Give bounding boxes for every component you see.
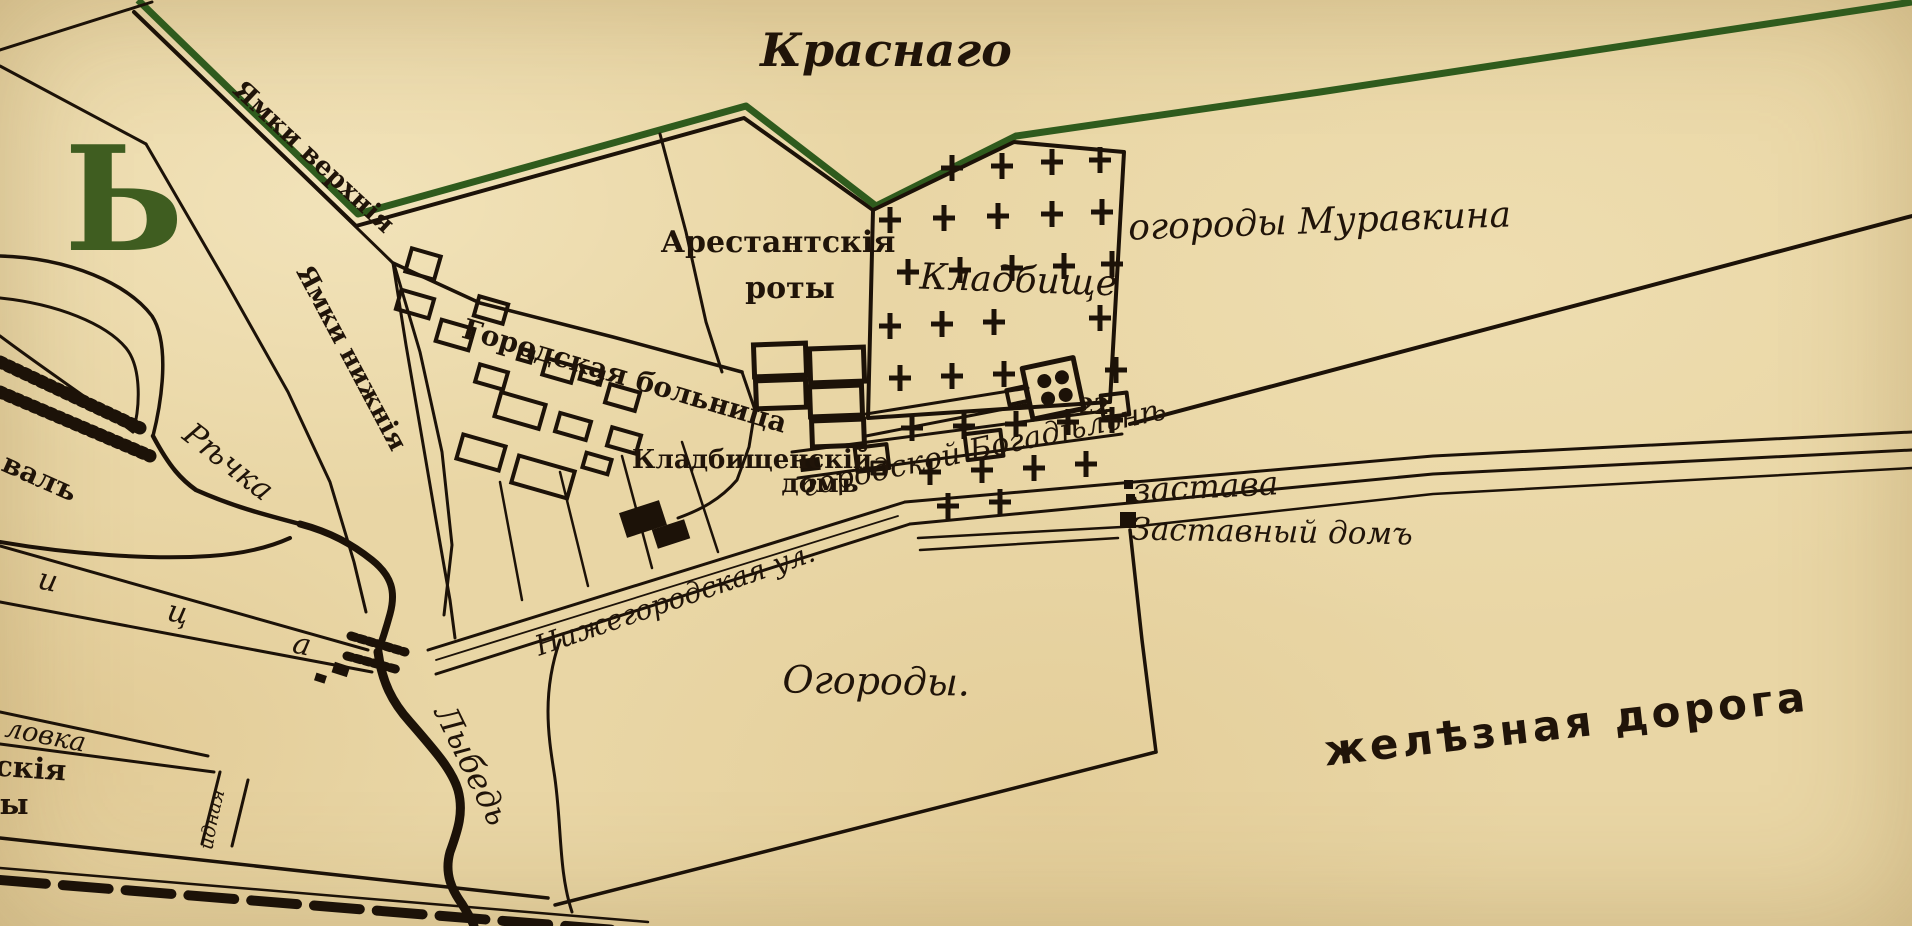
zastava-label: застава [1131, 463, 1279, 510]
church-quatrefoil-1 [1036, 373, 1053, 390]
rivers [0, 436, 474, 926]
arestantskiya-label-line1: Арестантскія [661, 225, 896, 260]
corner-letter: Ь [64, 115, 184, 285]
grave-cross-icon [1089, 305, 1111, 331]
railway [0, 868, 648, 926]
street-letter-a: а [290, 626, 315, 664]
junction-block-1 [332, 662, 351, 677]
grave-cross-icon [889, 365, 911, 391]
building-footprint [405, 248, 440, 279]
railway-dashed-line [0, 880, 640, 926]
building-footprint [475, 364, 508, 389]
yamki-upper-street-edge [176, 52, 394, 264]
grave-cross-icon [987, 203, 1009, 229]
historical-city-map: Краснаго Ь Ямки верхнія Ямки нижнія Рѣчк… [0, 0, 1912, 926]
grave-cross-icon [1105, 357, 1127, 383]
grave-cross-icon [991, 153, 1013, 179]
building-footprint [555, 413, 591, 440]
highway-line-4 [920, 538, 1118, 550]
church-quatrefoil-2 [1054, 369, 1071, 386]
building-footprint [582, 453, 611, 475]
map-canvas: Краснаго Ь Ямки верхнія Ямки нижнія Рѣчк… [0, 0, 1912, 926]
city-boundary [134, 0, 1912, 226]
ogorody-label: Огороды. [782, 657, 970, 704]
ogorody-south-edge [555, 752, 1156, 905]
rechka-label: Рѣчка [175, 415, 280, 508]
grave-cross-icon [941, 363, 963, 389]
cemetery-label: Кладбище [918, 257, 1118, 305]
church-quatrefoil-4 [1057, 387, 1074, 404]
street-letter-i: и [35, 562, 61, 600]
grave-cross-icon [983, 309, 1005, 335]
building-footprint [809, 385, 862, 417]
zastavny-dom-label: Заставный домъ [1131, 512, 1413, 553]
ogorody-muravkina-label: огороды Муравкина [1128, 194, 1512, 248]
grave-cross-icon [993, 361, 1015, 387]
ogorody-west-edge [548, 640, 572, 912]
junction-block-2 [314, 673, 327, 684]
nizhegorodskaya-label: Нижегородская ул. [530, 536, 820, 663]
street-letter-ts: ц [164, 593, 192, 632]
grave-cross-icon [1075, 451, 1097, 477]
grave-cross-icon [933, 205, 955, 231]
val-label: валъ [0, 446, 83, 508]
building-footprint [456, 434, 505, 470]
y-fragment-label: ы [0, 787, 29, 821]
arestantskiya-label-line2: роты [745, 271, 835, 306]
church-number-label: 22 [1079, 394, 1110, 420]
rechka-tributary [0, 538, 290, 557]
grave-cross-icon [1041, 149, 1063, 175]
railway-label: желѣзная дорога [1322, 672, 1812, 776]
skiya-fragment-label: скія [0, 749, 67, 788]
bogadelnya-road-line [1130, 216, 1912, 424]
highway-line-3 [918, 468, 1912, 538]
garden-plot-line-1 [500, 482, 522, 600]
building-footprint [494, 392, 545, 429]
grave-cross-icon [1041, 201, 1063, 227]
railway-thin-line [0, 868, 648, 922]
grave-cross-icon [879, 313, 901, 339]
grave-cross-icon [897, 259, 919, 285]
region-title: Краснаго [758, 23, 1012, 77]
ogorody-east-edge [1130, 530, 1156, 752]
yamki-upper-label: Ямки верхнія [227, 75, 400, 239]
corner-street-line [0, 2, 152, 50]
garden-plot-line-2 [560, 472, 588, 586]
boundary-green-line [138, 0, 1912, 214]
grave-cross-icon [1023, 455, 1045, 481]
building-footprint [809, 347, 864, 383]
grave-cross-icon [931, 311, 953, 337]
yamki-lower-label: Ямки нижнія [290, 261, 413, 456]
church-body [1022, 358, 1084, 420]
short-street-edge-2 [232, 780, 248, 846]
building-footprint [753, 343, 806, 377]
river-mid [300, 524, 393, 652]
grave-cross-icon [1091, 199, 1113, 225]
ravine-and-rampart [0, 256, 163, 456]
